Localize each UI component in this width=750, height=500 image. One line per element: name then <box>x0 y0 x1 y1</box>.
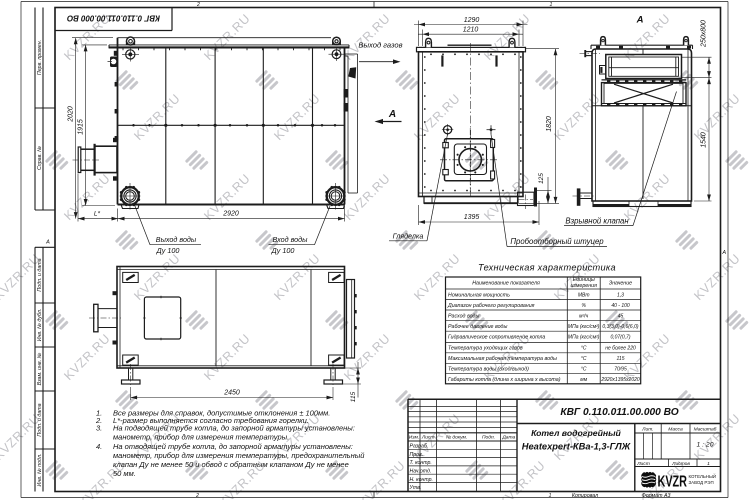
svg-text:КВГ 0.110.011.00.000 ВО: КВГ 0.110.011.00.000 ВО <box>66 13 160 22</box>
svg-text:2450: 2450 <box>223 389 240 396</box>
svg-text:1: 1 <box>707 461 710 467</box>
svg-text:Листов: Листов <box>671 461 690 467</box>
svg-text:Масштаб: Масштаб <box>694 427 717 433</box>
svg-text:Справ. №: Справ. № <box>37 146 43 170</box>
svg-text:115: 115 <box>350 391 357 402</box>
svg-text:KVZR: KVZR <box>658 473 688 490</box>
svg-text:измерения: измерения <box>570 283 597 289</box>
svg-text:Взам. инв. №: Взам. инв. № <box>37 352 43 385</box>
svg-text:KVZR.RU: KVZR.RU <box>341 171 393 223</box>
svg-text:2920: 2920 <box>222 211 239 218</box>
svg-text:L*: L* <box>94 211 101 218</box>
svg-text:KVZR.RU: KVZR.RU <box>131 251 183 303</box>
svg-text:Ду 100: Ду 100 <box>271 246 295 255</box>
svg-text:Утв.: Утв. <box>410 485 422 491</box>
svg-text:1: 1 <box>549 493 552 499</box>
svg-text:1: 1 <box>550 2 553 8</box>
svg-text:м³/ч: м³/ч <box>579 313 588 319</box>
svg-text:А: А <box>721 250 726 256</box>
svg-text:KVZR.RU: KVZR.RU <box>496 458 548 500</box>
svg-text:4.: 4. <box>96 442 102 451</box>
svg-text:KVZR.RU: KVZR.RU <box>201 331 253 383</box>
svg-text:клапан Ду не менее 50 и обвод: клапан Ду не менее 50 и обвод с обратным… <box>113 460 349 469</box>
svg-text:KVZR.RU: KVZR.RU <box>691 91 743 143</box>
svg-text:манометр, прибор для измерения: манометр, прибор для измерения температу… <box>113 433 289 442</box>
svg-text:0,3(3,0)-0,6(6,0): 0,3(3,0)-0,6(6,0) <box>602 324 638 330</box>
svg-text:Температура уходящих газов: Температура уходящих газов <box>448 346 523 352</box>
svg-text:Пров.: Пров. <box>410 452 424 458</box>
svg-text:Ду 100: Ду 100 <box>156 246 180 255</box>
svg-text:Габариты котла (длина х ширина: Габариты котла (длина х ширина х высота) <box>448 377 561 383</box>
svg-text:115: 115 <box>617 356 625 362</box>
svg-text:А: А <box>636 15 644 26</box>
svg-text:40 - 100: 40 - 100 <box>611 303 630 309</box>
svg-text:Лист: Лист <box>636 461 650 467</box>
svg-text:Диапазон рабочего регулировани: Диапазон рабочего регулирования <box>447 303 535 309</box>
svg-text:Максимальная рабочая температу: Максимальная рабочая температура воды <box>448 356 557 362</box>
svg-text:250х800: 250х800 <box>700 20 707 48</box>
svg-text:МПа (кгс/см²): МПа (кгс/см²) <box>568 335 600 341</box>
svg-text:2: 2 <box>196 2 200 8</box>
svg-text:Копировал: Копировал <box>572 493 598 499</box>
svg-text:КВГ 0.110.011.00.000 ВО: КВГ 0.110.011.00.000 ВО <box>560 407 678 418</box>
svg-text:Пробоотборный штуцер: Пробоотборный штуцер <box>510 237 604 246</box>
svg-text:Лит.: Лит. <box>641 427 653 433</box>
svg-text:Инв. № подл.: Инв. № подл. <box>37 454 43 487</box>
svg-text:3.: 3. <box>96 424 102 433</box>
svg-text:KVZR.RU: KVZR.RU <box>341 11 393 63</box>
svg-text:KVZR.RU: KVZR.RU <box>61 171 113 223</box>
svg-text:На подводящей трубе котла, до: На подводящей трубе котла, до запорной а… <box>113 424 355 433</box>
svg-text:Подп. и дата: Подп. и дата <box>37 258 43 291</box>
svg-text:KVZR.RU: KVZR.RU <box>271 251 323 303</box>
svg-text:Наименование показателя: Наименование показателя <box>472 281 540 287</box>
svg-text:KVZR.RU: KVZR.RU <box>131 91 183 143</box>
svg-text:А: А <box>45 240 50 246</box>
svg-text:°С: °С <box>581 367 587 373</box>
svg-text:KVZR.RU: KVZR.RU <box>691 411 743 463</box>
svg-text:Изм.: Изм. <box>409 435 419 441</box>
svg-text:Номинальная мощность: Номинальная мощность <box>448 292 510 298</box>
svg-text:1915: 1915 <box>77 119 84 135</box>
svg-text:Разраб.: Разраб. <box>410 444 429 450</box>
svg-text:Подп.: Подп. <box>482 435 495 441</box>
svg-text:Подп. и дата: Подп. и дата <box>37 403 43 436</box>
svg-text:Температура воды (вход/выход): Температура воды (вход/выход) <box>448 367 529 373</box>
svg-text:А: А <box>388 109 396 120</box>
svg-text:манометр, прибор для измерения: манометр, прибор для измерения температу… <box>113 451 365 460</box>
svg-text:KVZR.RU: KVZR.RU <box>621 11 673 63</box>
svg-text:1395: 1395 <box>464 214 480 221</box>
svg-text:МПа (кгс/см²): МПа (кгс/см²) <box>568 324 600 330</box>
svg-text:Масса: Масса <box>668 427 683 433</box>
svg-text:Рабочее давление воды: Рабочее давление воды <box>448 324 507 330</box>
svg-text:1 : 20: 1 : 20 <box>696 442 713 449</box>
svg-text:KVZR.RU: KVZR.RU <box>481 11 533 63</box>
svg-text:Выход воды: Выход воды <box>156 235 197 244</box>
svg-text:2: 2 <box>195 493 199 499</box>
svg-text:1820: 1820 <box>546 116 553 132</box>
svg-text:На отводящей трубе котла, до з: На отводящей трубе котла, до запорной ар… <box>113 442 353 451</box>
svg-text:KVZR.RU: KVZR.RU <box>201 11 253 63</box>
svg-text:Heatexpert-КВа-1,3-ГЛЖ: Heatexpert-КВа-1,3-ГЛЖ <box>522 442 632 452</box>
svg-text:125: 125 <box>538 173 545 184</box>
svg-text:мм: мм <box>580 377 587 383</box>
svg-text:Н. контр.: Н. контр. <box>410 477 433 483</box>
svg-text:Гидравлическое сопротивление к: Гидравлическое сопротивление котла <box>448 335 545 341</box>
svg-text:50 мм.: 50 мм. <box>113 469 136 478</box>
svg-text:Гляделка: Гляделка <box>393 231 424 240</box>
svg-text:1540: 1540 <box>700 132 707 148</box>
svg-text:Нач.отд.: Нач.отд. <box>410 469 432 475</box>
svg-text:Взрывной клапан: Взрывной клапан <box>565 217 629 226</box>
svg-text:1,3: 1,3 <box>617 292 624 298</box>
svg-text:KVZR.RU: KVZR.RU <box>621 171 673 223</box>
svg-text:KVZR.RU: KVZR.RU <box>61 331 113 383</box>
svg-text:KVZR.RU: KVZR.RU <box>341 331 393 383</box>
svg-text:%: % <box>581 303 586 309</box>
svg-text:Вход воды: Вход воды <box>273 235 309 244</box>
svg-text:45: 45 <box>618 313 624 319</box>
svg-text:Техническая характеристика: Техническая характеристика <box>478 262 616 272</box>
svg-text:2920х1395х2020: 2920х1395х2020 <box>600 377 640 383</box>
svg-text:2020: 2020 <box>68 106 75 123</box>
svg-text:Расход воды: Расход воды <box>448 313 479 319</box>
svg-text:Лист: Лист <box>421 435 435 441</box>
svg-text:KVZR.RU: KVZR.RU <box>691 251 743 303</box>
svg-text:0,07(0,7): 0,07(0,7) <box>610 335 630 341</box>
svg-text:Т. контр.: Т. контр. <box>410 460 432 466</box>
svg-text:70/95: 70/95 <box>614 367 627 373</box>
svg-text:КОТЕЛЬНЫЙ: КОТЕЛЬНЫЙ <box>689 474 717 479</box>
svg-text:KVZR.RU: KVZR.RU <box>356 458 408 500</box>
svg-text:Перв. примен.: Перв. примен. <box>37 40 43 75</box>
svg-text:Котел водогрейный: Котел водогрейный <box>531 428 621 438</box>
svg-text:№ докум.: № докум. <box>446 435 468 441</box>
svg-text:1290: 1290 <box>464 17 480 24</box>
svg-text:°С: °С <box>581 346 587 352</box>
svg-text:KVZR.RU: KVZR.RU <box>271 91 323 143</box>
svg-text:Формат А3: Формат А3 <box>642 493 671 499</box>
svg-text:Дата: Дата <box>501 435 515 441</box>
svg-text:°С: °С <box>581 356 587 362</box>
svg-text:ЗАВОД РЭП: ЗАВОД РЭП <box>689 480 714 485</box>
svg-text:Выход газов: Выход газов <box>358 41 402 50</box>
svg-text:1210: 1210 <box>463 27 479 34</box>
svg-text:МВт: МВт <box>578 292 590 298</box>
svg-text:Значение: Значение <box>609 281 632 287</box>
svg-text:Инв. № дубл.: Инв. № дубл. <box>37 309 43 342</box>
svg-text:не более 220: не более 220 <box>605 346 636 352</box>
